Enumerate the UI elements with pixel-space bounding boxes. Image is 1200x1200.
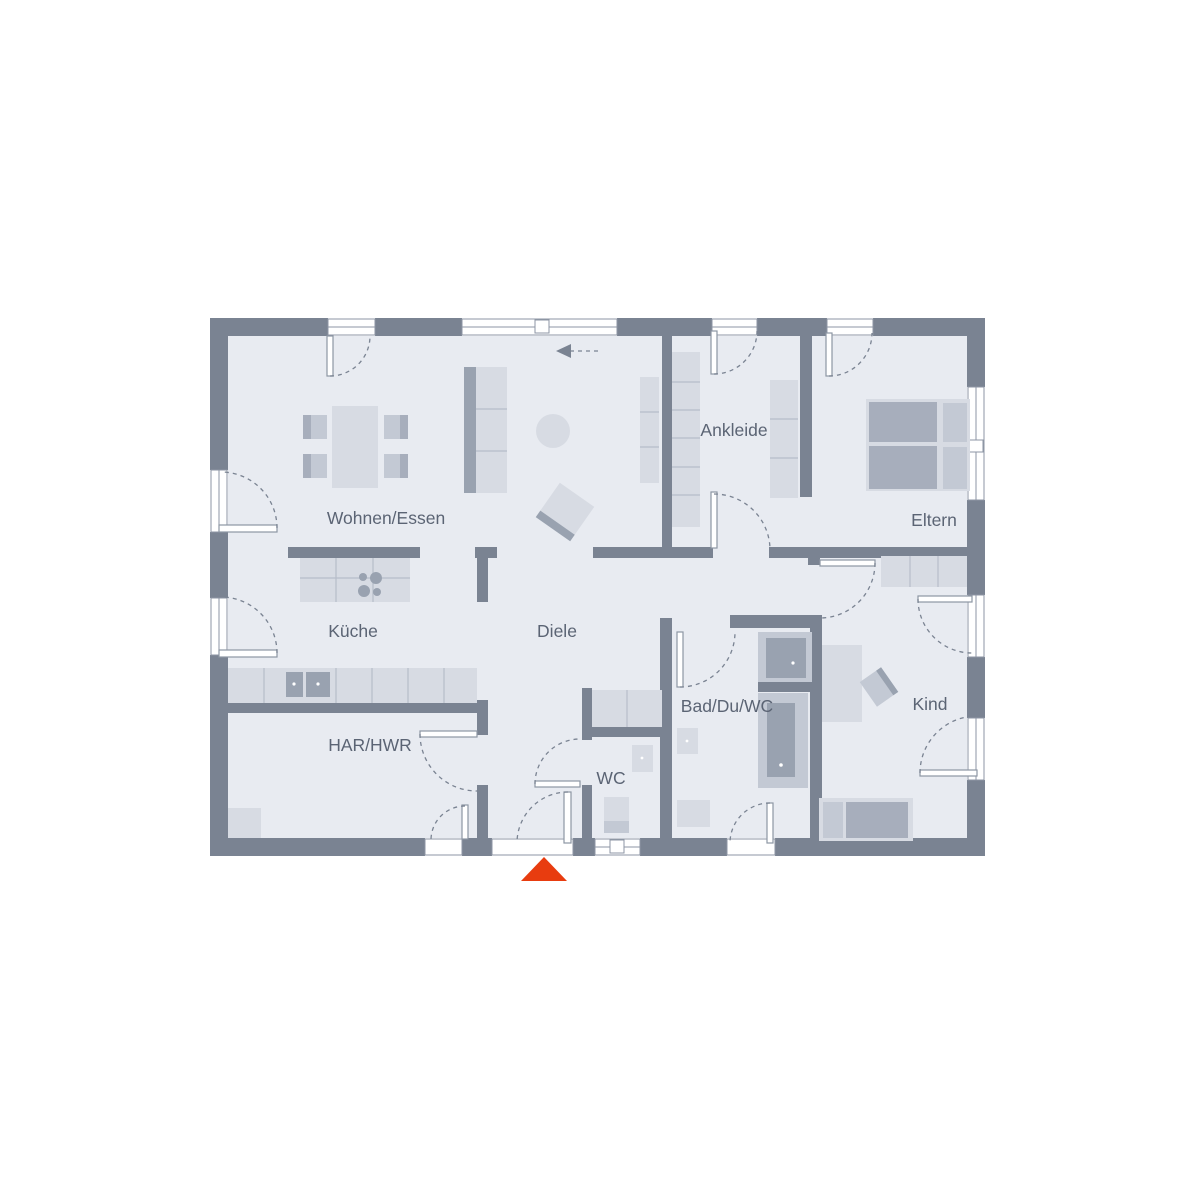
chair (400, 415, 408, 439)
wardrobe (770, 380, 798, 498)
chair (303, 454, 311, 478)
room-label-bad-du-wc: Bad/Du/WC (681, 696, 773, 716)
room-label-kind: Kind (912, 694, 947, 714)
wall-segment (477, 558, 488, 602)
door-leaf (767, 803, 773, 843)
wall-segment (757, 318, 827, 336)
furniture-har-hwr (228, 808, 261, 838)
door-leaf (327, 336, 333, 376)
wall-segment (210, 532, 228, 598)
wall-segment (593, 547, 713, 558)
shower-tray (766, 638, 806, 678)
round-rug (536, 414, 570, 448)
wall-segment (210, 655, 228, 856)
hob-burner (358, 585, 370, 597)
shelf (640, 377, 659, 483)
furniture-diele (592, 690, 662, 727)
kitchen-counter (228, 668, 477, 703)
mattress (846, 802, 908, 838)
chair (384, 454, 400, 478)
hob-burner (373, 588, 381, 596)
window-divider-marker (535, 320, 549, 333)
toilet (604, 797, 629, 823)
kitchen-island (300, 558, 410, 602)
window-leaf (920, 770, 977, 776)
entrance-arrow-icon (521, 857, 567, 881)
room-label-eltern: Eltern (911, 510, 957, 530)
wall-segment (800, 336, 812, 497)
wall-segment (617, 318, 712, 336)
wall-segment (210, 838, 425, 856)
wall-segment (210, 318, 228, 470)
mattress (869, 402, 937, 442)
room-label-har-hwr: HAR/HWR (328, 735, 412, 755)
toilet (677, 800, 710, 827)
chair (384, 415, 400, 439)
wall-segment (477, 785, 488, 838)
window-leaf (918, 596, 972, 602)
wall-segment (582, 688, 592, 740)
wall-segment (967, 500, 985, 595)
room-label-ankleide: Ankleide (700, 420, 767, 440)
door-leaf (826, 333, 832, 376)
wall-segment (967, 657, 985, 718)
chair (311, 454, 327, 478)
wall-segment (808, 553, 820, 565)
sink-drain (316, 682, 319, 685)
door-opening (425, 839, 462, 855)
appliance (228, 808, 261, 838)
entrance-opening (492, 839, 573, 855)
wall-segment (288, 547, 420, 558)
door-leaf (677, 632, 683, 687)
shower-half-wall (758, 682, 812, 692)
hob-burner (359, 573, 367, 581)
wall-segment (662, 336, 672, 550)
washbasin-drain (641, 757, 644, 760)
room-label-diele: Diele (537, 621, 577, 641)
door-leaf (462, 805, 468, 839)
wardrobe (672, 352, 700, 527)
door-leaf (820, 560, 875, 566)
door-leaf (219, 525, 277, 532)
wall-segment (592, 727, 662, 737)
pillow (823, 802, 843, 838)
entrance-door-leaf (564, 792, 571, 843)
furniture-eltern (866, 399, 970, 491)
dining-table (332, 406, 378, 488)
bathtub-drain (779, 763, 783, 767)
window-divider-marker (610, 840, 624, 853)
hob-burner (370, 572, 382, 584)
mattress (869, 446, 937, 489)
wall-segment (475, 547, 497, 558)
door-leaf (219, 650, 277, 657)
wall-segment (967, 318, 985, 387)
sink-drain (292, 682, 295, 685)
sofa (476, 367, 507, 493)
wall-segment (375, 318, 462, 336)
shower-drain (791, 661, 794, 664)
floorplan-drawing: Wohnen/Essen Küche Diele Ankleide Eltern… (0, 0, 1200, 1200)
desk (822, 645, 862, 722)
wall-segment (228, 703, 487, 713)
door-leaf (711, 331, 717, 374)
room-label-wohnen-essen: Wohnen/Essen (327, 508, 445, 528)
pillow (943, 447, 967, 489)
toilet-cistern (604, 821, 629, 833)
wardrobe (881, 556, 967, 587)
chair (303, 415, 311, 439)
window-divider-marker (968, 440, 983, 452)
wall-segment (582, 785, 592, 842)
door-leaf (420, 731, 477, 737)
door-leaf (535, 781, 580, 787)
wall-segment (730, 615, 812, 628)
wall-segment (640, 838, 727, 856)
sofa-backrest (464, 367, 476, 493)
floorplan-page: Wohnen/Essen Küche Diele Ankleide Eltern… (0, 0, 1200, 1200)
washbasin-drain (686, 740, 689, 743)
wall-segment (660, 618, 672, 843)
chair (400, 454, 408, 478)
door-leaf (711, 492, 717, 548)
wall-segment (462, 838, 492, 856)
room-label-wc: WC (596, 768, 625, 788)
chair (311, 415, 327, 439)
pillow (943, 403, 967, 442)
room-label-kueche: Küche (328, 621, 378, 641)
